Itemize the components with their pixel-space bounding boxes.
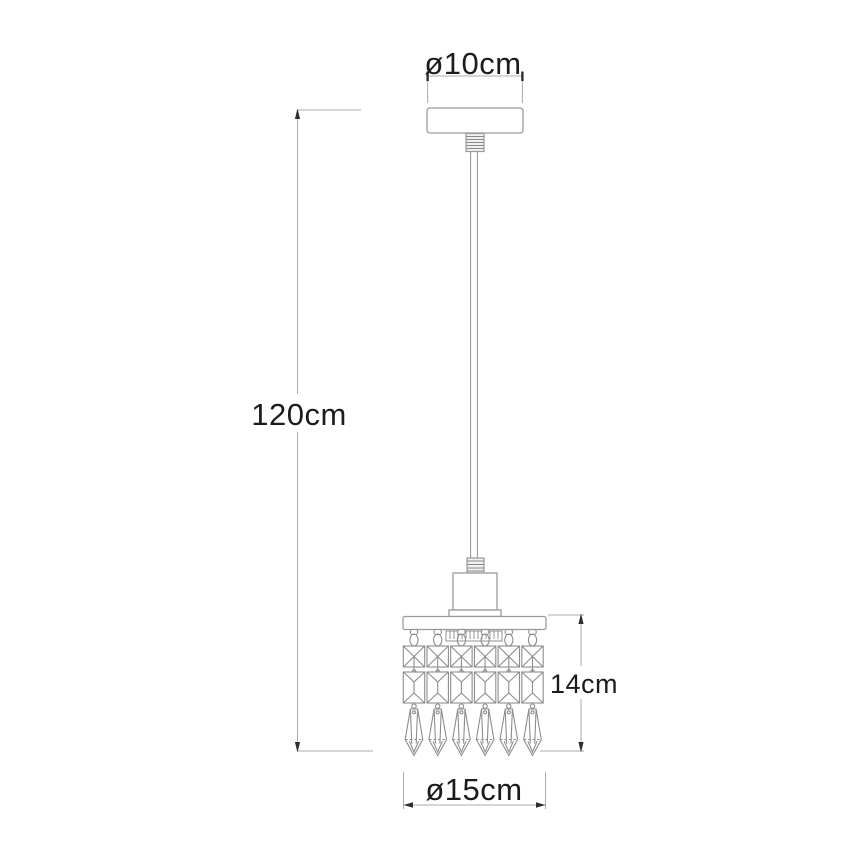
crystal-strand bbox=[474, 630, 495, 756]
shade-diameter-dimension: ø15cm bbox=[404, 772, 546, 809]
cord-grip-top bbox=[466, 134, 484, 152]
socket-skirt bbox=[446, 631, 502, 641]
shade-height-dimension: 14cm bbox=[540, 614, 618, 753]
socket-housing bbox=[449, 573, 501, 617]
mounting-plate bbox=[403, 617, 546, 630]
pendant-lamp-dimension-diagram: ø10cm bbox=[0, 0, 868, 868]
pendant-height-dimension: 120cm bbox=[250, 109, 373, 753]
dimension-arrow-right bbox=[536, 802, 546, 807]
diagram-canvas: ø10cm bbox=[0, 0, 868, 868]
cord-grip-bottom bbox=[467, 558, 484, 573]
ceiling-canopy bbox=[427, 108, 523, 133]
shade-diameter-label: ø15cm bbox=[425, 772, 522, 807]
shade-height-label: 14cm bbox=[550, 669, 618, 699]
crystal-strand bbox=[498, 630, 519, 756]
pendant-height-label: 120cm bbox=[251, 397, 347, 432]
crystal-strand bbox=[451, 630, 472, 756]
canopy-diameter-dimension: ø10cm bbox=[424, 46, 523, 103]
crystal-strands bbox=[403, 630, 543, 756]
suspension-cable bbox=[471, 152, 478, 559]
socket-flange bbox=[449, 610, 501, 617]
dimension-arrow-left bbox=[404, 802, 414, 807]
canopy-diameter-label: ø10cm bbox=[424, 46, 521, 81]
crystal-strand bbox=[403, 630, 424, 756]
crystal-strand bbox=[522, 630, 543, 756]
crystal-strand bbox=[427, 630, 448, 756]
